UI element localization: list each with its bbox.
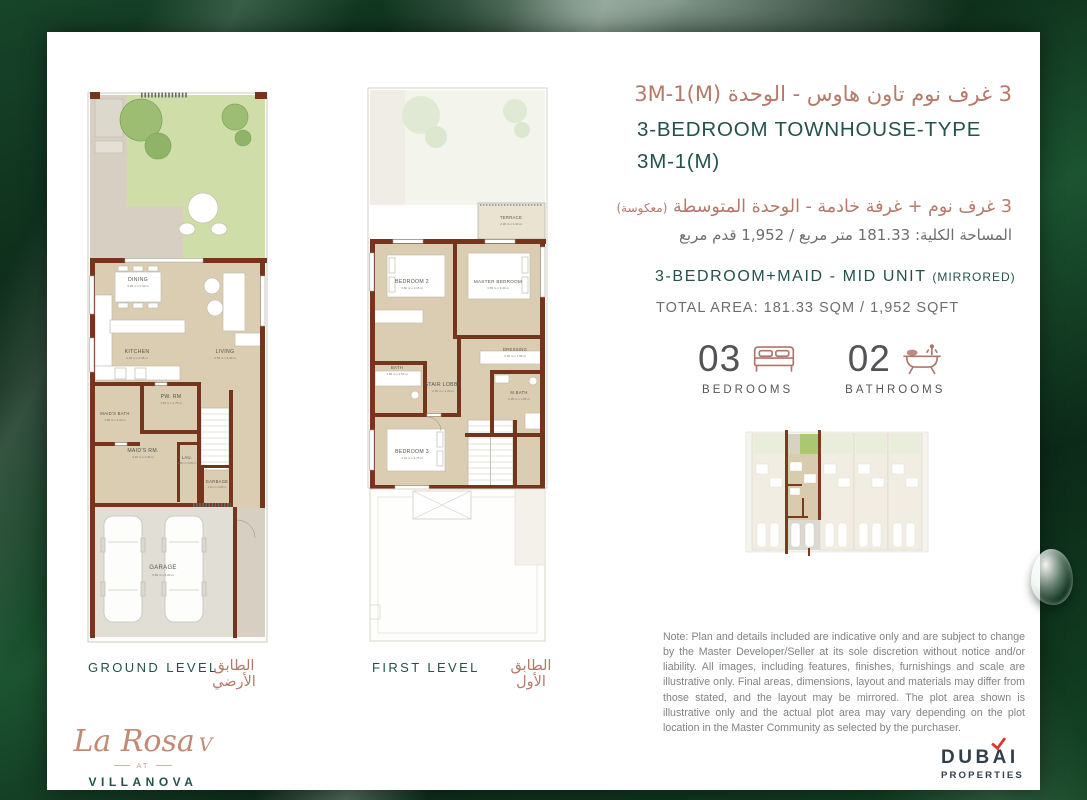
disclaimer-note: Note: Plan and details included are indi… <box>663 630 1025 736</box>
svg-text:MASTER BEDROOM: MASTER BEDROOM <box>474 279 522 284</box>
site-plan-thumbnail <box>742 428 932 558</box>
svg-text:3.10 m x 3.75 m: 3.10 m x 3.75 m <box>401 456 423 460</box>
logo-divider <box>114 765 130 766</box>
svg-text:1.10 m x 0.80 m: 1.10 m x 0.80 m <box>208 485 227 489</box>
first-level-caption: FIRST LEVEL <box>372 660 480 675</box>
faded-units <box>746 432 928 552</box>
unit-subtitle-arabic: 3 غرف نوم + غرفة خادمة - الوحدة المتوسطة… <box>617 197 1013 217</box>
svg-text:1.95 m x 2.50 m: 1.95 m x 2.50 m <box>386 372 408 376</box>
svg-text:MAID'S BATH: MAID'S BATH <box>100 411 129 416</box>
svg-text:LIVING: LIVING <box>216 349 235 355</box>
svg-text:DINING: DINING <box>128 277 148 283</box>
terrace-area <box>478 203 545 239</box>
ghost-roof <box>370 489 545 641</box>
developer-logo: DUBAI PROPERTIES <box>941 747 1033 781</box>
project-phase: V <box>199 734 213 756</box>
bathtub-icon <box>901 341 943 377</box>
unit-title-line2: 3M-1(M) <box>637 146 981 178</box>
svg-text:2.30 m x 1.20 m: 2.30 m x 1.20 m <box>432 389 454 393</box>
bathrooms-count: 02 <box>848 338 891 380</box>
bathrooms-label: BATHROOMS <box>845 384 945 396</box>
svg-text:1.00 m x 0.80 m: 1.00 m x 0.80 m <box>178 461 197 465</box>
master-community-name: VILLANOVA <box>68 775 218 789</box>
svg-text:1.45 m x 1.75 m: 1.45 m x 1.75 m <box>160 401 182 405</box>
svg-text:DRESSING: DRESSING <box>503 347 527 352</box>
svg-text:TERRACE: TERRACE <box>500 215 522 220</box>
svg-text:BATH: BATH <box>391 365 403 370</box>
svg-text:3.60 m x 3.15 m: 3.60 m x 3.15 m <box>401 286 423 290</box>
unit-title-arabic: 3 غرف نوم تاون هاوس - الوحدة 3M-1(M) <box>634 82 1012 106</box>
svg-text:PW. RM: PW. RM <box>161 394 182 400</box>
total-area-arabic: المساحة الكلية: 181.33 متر مربع / 1,952 … <box>679 226 1012 244</box>
svg-text:STAIR LOBBY: STAIR LOBBY <box>425 382 462 388</box>
project-name: La Rosa <box>73 724 194 759</box>
svg-text:LAU.: LAU. <box>182 455 193 460</box>
first-floor-plan: TERRACE 2.30 m x 1.30 m BEDROOM 2 3.60 m… <box>365 85 550 650</box>
svg-text:3.15 m x 2.30 m: 3.15 m x 2.30 m <box>132 455 154 459</box>
total-area-english: TOTAL AREA: 181.33 SQM / 1,952 SQFT <box>656 300 959 316</box>
unit-title-english: 3-BEDROOM TOWNHOUSE-TYPE 3M-1(M) <box>637 114 981 178</box>
svg-text:BEDROOM 3: BEDROOM 3 <box>395 449 429 455</box>
mirrored-note-arabic: (معكوسة) <box>617 201 668 215</box>
logo-divider <box>156 765 172 766</box>
svg-text:3.25 m x 3.10 m: 3.25 m x 3.10 m <box>127 284 149 288</box>
svg-text:2.35 m x 1.85 m: 2.35 m x 1.85 m <box>508 397 530 401</box>
checkmark-icon <box>991 737 1006 750</box>
developer-sub-label: PROPERTIES <box>941 770 1033 781</box>
svg-text:1.90 m x 2.10 m: 1.90 m x 2.10 m <box>104 418 126 422</box>
ground-floor-plan: DINING 3.25 m x 3.10 m KITCHEN 3.15 m x … <box>85 90 270 650</box>
svg-text:3.55 m x 6.40 m: 3.55 m x 6.40 m <box>214 356 236 360</box>
first-level-caption-arabic: الطابق الأول <box>496 658 566 690</box>
water-droplet <box>1031 549 1073 605</box>
highlighted-unit <box>785 430 821 556</box>
project-at-label: AT <box>136 761 149 770</box>
svg-text:M.BATH: M.BATH <box>510 390 527 395</box>
bedrooms-stat: 03 BEDROOMS <box>698 338 797 396</box>
svg-text:MAID'S RM.: MAID'S RM. <box>127 448 158 454</box>
unit-subtitle-english: 3-BEDROOM+MAID - MID UNIT (MIRRORED) <box>655 268 1016 286</box>
mirrored-note-english: (MIRRORED) <box>932 270 1015 284</box>
svg-text:3.55 m x 3.40 m: 3.55 m x 3.40 m <box>487 286 509 290</box>
svg-text:2.35 m x 1.55 m: 2.35 m x 1.55 m <box>504 354 526 358</box>
svg-text:2.30 m x 1.30 m: 2.30 m x 1.30 m <box>500 222 522 226</box>
brochure-page: DINING 3.25 m x 3.10 m KITCHEN 3.15 m x … <box>0 0 1087 800</box>
ground-level-caption-arabic: الطابق الأرضي <box>196 658 272 690</box>
svg-text:GARBAGE: GARBAGE <box>206 479 229 484</box>
bedrooms-label: BEDROOMS <box>698 384 797 396</box>
bedrooms-count: 03 <box>698 338 741 380</box>
unit-title-line1: 3-BEDROOM TOWNHOUSE-TYPE <box>637 114 981 146</box>
stairs <box>201 408 229 470</box>
svg-text:5.60 m x 6.00 m: 5.60 m x 6.00 m <box>152 573 174 577</box>
garden-area <box>90 92 267 262</box>
svg-text:GARAGE: GARAGE <box>149 565 176 571</box>
unit-stats: 03 BEDROOMS 02 <box>698 338 945 396</box>
bathrooms-stat: 02 BATHROOMS <box>845 338 945 396</box>
bed-icon <box>751 343 797 375</box>
svg-text:3.15 m x 2.45 m: 3.15 m x 2.45 m <box>126 356 148 360</box>
svg-text:KITCHEN: KITCHEN <box>125 349 150 355</box>
svg-text:BEDROOM 2: BEDROOM 2 <box>395 279 429 285</box>
project-logo: La RosaV AT VILLANOVA <box>68 724 218 789</box>
ghost-garden <box>370 90 545 205</box>
